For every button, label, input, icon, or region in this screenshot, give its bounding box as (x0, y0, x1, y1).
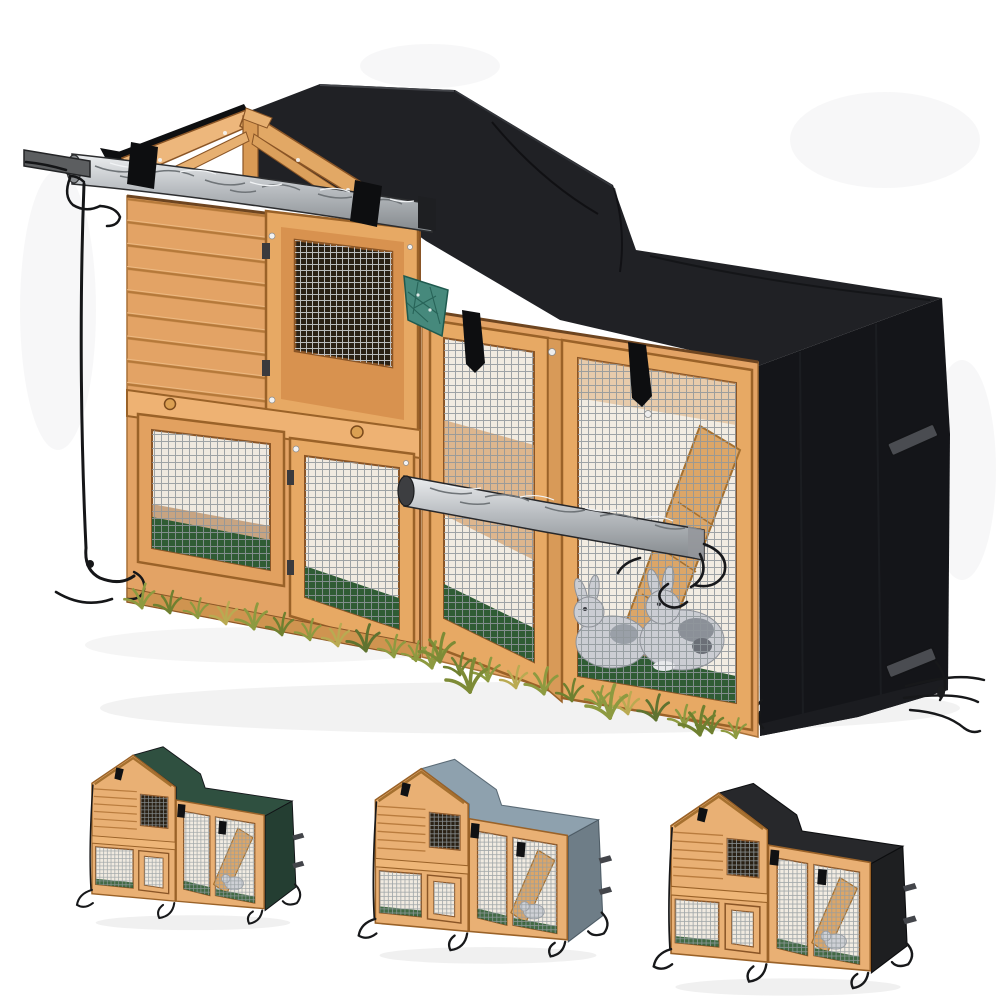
variant-thumbnail-black (636, 778, 940, 1000)
product-photo (0, 0, 1000, 1000)
door-knob (351, 426, 363, 438)
thumb-shadow (380, 947, 597, 964)
variant-thumbnail-dark-green (62, 742, 324, 934)
snap-button (645, 411, 652, 418)
door-knob (165, 399, 176, 410)
main-product-image (0, 0, 1000, 745)
snap-button (549, 349, 556, 356)
cover-side-panel (758, 298, 950, 736)
thumb-shadow (96, 915, 291, 930)
variant-thumbnail-grey (342, 754, 634, 968)
thumb-shadow (675, 978, 900, 995)
